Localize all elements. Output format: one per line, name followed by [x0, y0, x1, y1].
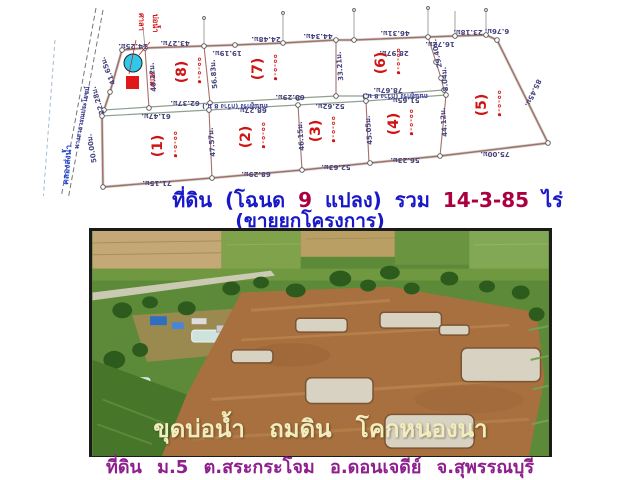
dimension-label: 24.48ม. — [251, 35, 280, 43]
dimension-label: 51.65ม. — [390, 96, 419, 104]
dimension-label: 46.15ม. — [296, 121, 307, 151]
survey-vertex — [334, 94, 339, 99]
dimension-label: 75.00ม. — [480, 150, 509, 158]
survey-map: ศาลา บ่อน้ำ ศาลา ถนนลูกรัง (กว้าง 8 ม.) … — [0, 0, 640, 196]
pond-symbol — [124, 54, 142, 72]
survey-vertex — [546, 141, 551, 146]
dimension-label: 68.29ม. — [241, 170, 270, 178]
dimension-label: 78.67ม. — [373, 86, 402, 94]
dimension-label: 52.62ม. — [315, 102, 344, 110]
dimension-label: 40.12ม. — [148, 62, 159, 92]
dimension-label: 52.63ม. — [321, 163, 350, 171]
dimension-label: 14.25ม. — [118, 42, 147, 50]
pavilion-symbol — [126, 76, 139, 89]
dimension-label: 45.05ม. — [364, 115, 375, 145]
plot-area-mark: ๑-๐-๐๐ — [259, 121, 267, 148]
plot-area-mark: ๑-๐-๐๐ — [171, 130, 179, 157]
far-fields — [93, 231, 549, 281]
canal-line — [42, 40, 55, 196]
dimension-label: 6.76ม. — [485, 27, 510, 35]
survey-vertex — [296, 103, 301, 108]
plot-number: (4) — [386, 113, 402, 136]
dimension-label: 47.57ม. — [207, 127, 218, 157]
dimension-label: 68.27ม. — [237, 106, 266, 114]
dimension-label: 33.21ม. — [335, 51, 346, 81]
survey-vertex — [444, 93, 449, 98]
plot-area-mark: ๑-๐-๐๐ — [271, 53, 279, 80]
survey-vertex — [495, 38, 500, 43]
dimension-label: 56.83ม. — [209, 59, 220, 89]
plot-number: (8) — [174, 61, 190, 84]
plot-area-mark: ๑-๐-๐๐ — [407, 108, 415, 135]
survey-vertex — [334, 38, 339, 43]
survey-vertex — [300, 168, 305, 173]
plot-number: (2) — [238, 126, 254, 149]
dimension-label: 85.45ม. — [523, 78, 543, 108]
survey-vertex — [101, 185, 106, 190]
plot-area-mark: ๑-๐-๐๐ — [394, 47, 402, 74]
dimension-label: 44.34ม. — [303, 32, 332, 40]
dimension-label: 8.04ม. — [440, 67, 450, 92]
dimension-label: 43.27ม. — [160, 39, 189, 47]
dimension-label: 46.31ม. — [380, 29, 409, 37]
survey-vertex — [438, 154, 443, 159]
dimension-label: 23.18ม. — [453, 28, 482, 36]
survey-vertex — [210, 176, 215, 181]
flyer-page: ศาลา บ่อน้ำ ศาลา ถนนลูกรัง (กว้าง 8 ม.) … — [0, 0, 640, 480]
plot-number: (3) — [308, 120, 324, 143]
plot-number: (1) — [150, 135, 166, 158]
dimension-label: 22.28ม. — [90, 85, 107, 115]
plot-number: (7) — [250, 58, 266, 81]
survey-vertex — [147, 106, 152, 111]
survey-vertex — [233, 43, 238, 48]
plot-area-mark: ๑-๐-๐๐ — [195, 56, 203, 83]
location-caption: ที่ดิน ม.5 ต.สระกระโจม อ.ดอนเจดีย์ จ.สุพ… — [0, 457, 640, 480]
dimension-label: 44.12ม. — [439, 107, 450, 137]
plot-area-mark: ๑-๐-๐๐ — [329, 115, 337, 142]
survey-vertex — [352, 38, 357, 43]
dimension-label: 56.23ม. — [390, 156, 419, 164]
dimension-label: 68.29ม. — [275, 93, 304, 101]
survey-vertex — [426, 35, 431, 40]
dimension-label: 62.37ม. — [170, 99, 199, 107]
pond-label: บ่อน้ำ — [151, 14, 162, 33]
survey-vertex — [202, 44, 207, 49]
dimension-label: 19.19ม. — [212, 49, 241, 57]
photo-overlay-text: ขุดบ่อน้ำ ถมดิน โคกหนองนา — [92, 409, 549, 448]
pavilion-label: ศาลา — [137, 13, 146, 31]
plot-area-mark: ๑-๐-๐๐ — [495, 89, 503, 116]
dimension-label: 50.00ม. — [86, 133, 99, 163]
plot-number: (6) — [373, 52, 389, 75]
plot-number: (5) — [474, 94, 490, 117]
dimension-label: 61.47ม. — [141, 112, 170, 120]
aerial-photo: ขุดบ่อน้ำ ถมดิน โคกหนองนา — [89, 228, 552, 459]
survey-vertex — [108, 90, 113, 95]
survey-vertex — [368, 161, 373, 166]
